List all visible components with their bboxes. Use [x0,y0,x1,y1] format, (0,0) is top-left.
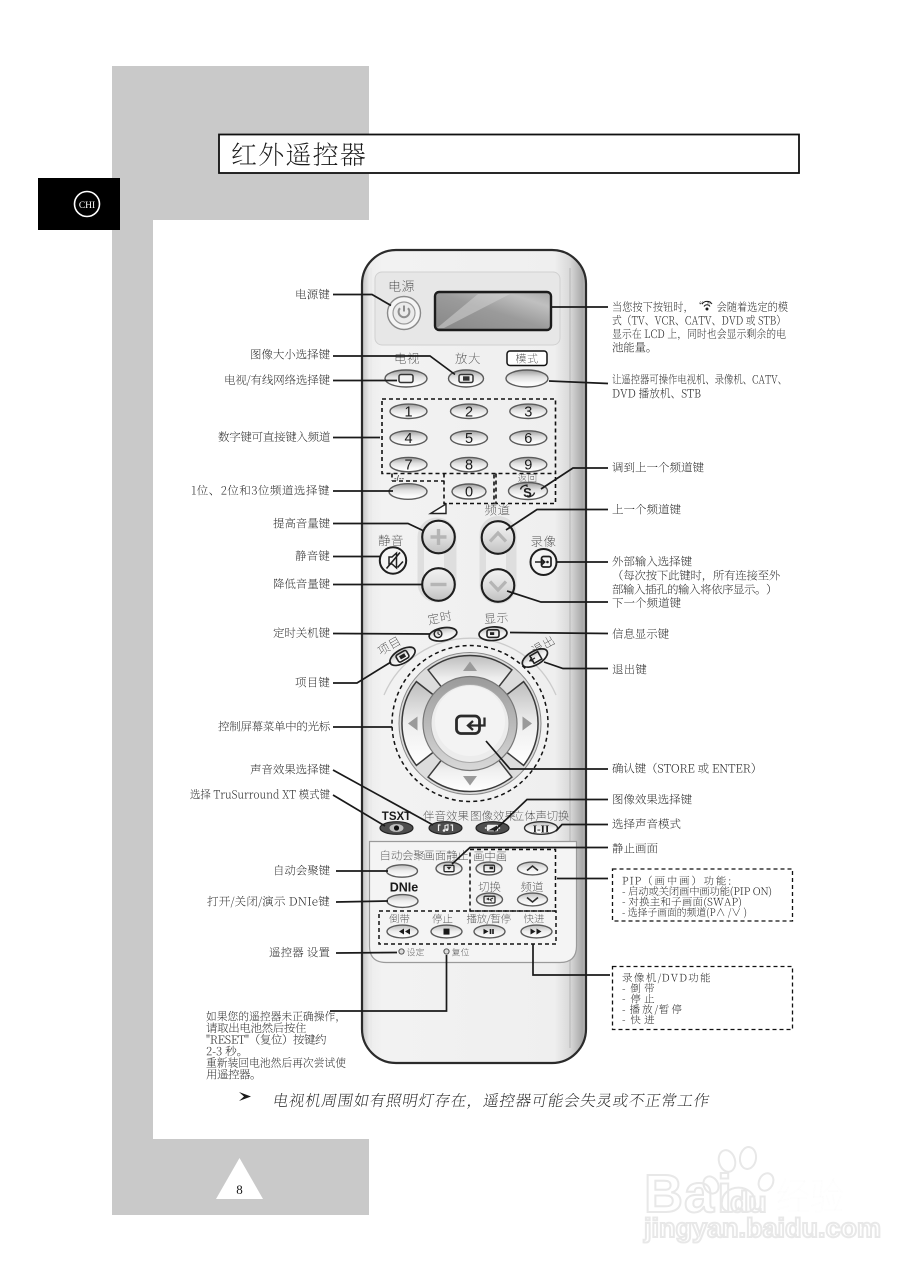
svg-text:4: 4 [404,431,412,447]
svg-text:0: 0 [465,485,473,501]
svg-text:8: 8 [236,1182,243,1197]
svg-text:5: 5 [465,431,473,447]
svg-text:I-II: I-II [533,823,550,835]
svg-text:1: 1 [404,404,412,420]
svg-text:CHI: CHI [79,201,95,211]
svg-text:DNIe: DNIe [390,881,419,895]
svg-text:6: 6 [524,431,532,447]
svg-text:3: 3 [524,404,532,420]
svg-text:-/--: -/-- [394,474,405,483]
svg-text:jingyan.baidu.com: jingyan.baidu.com [643,1213,881,1243]
svg-text:8: 8 [465,458,473,474]
svg-text:9: 9 [524,458,532,474]
svg-text:7: 7 [404,458,412,474]
svg-text:2: 2 [465,404,473,420]
